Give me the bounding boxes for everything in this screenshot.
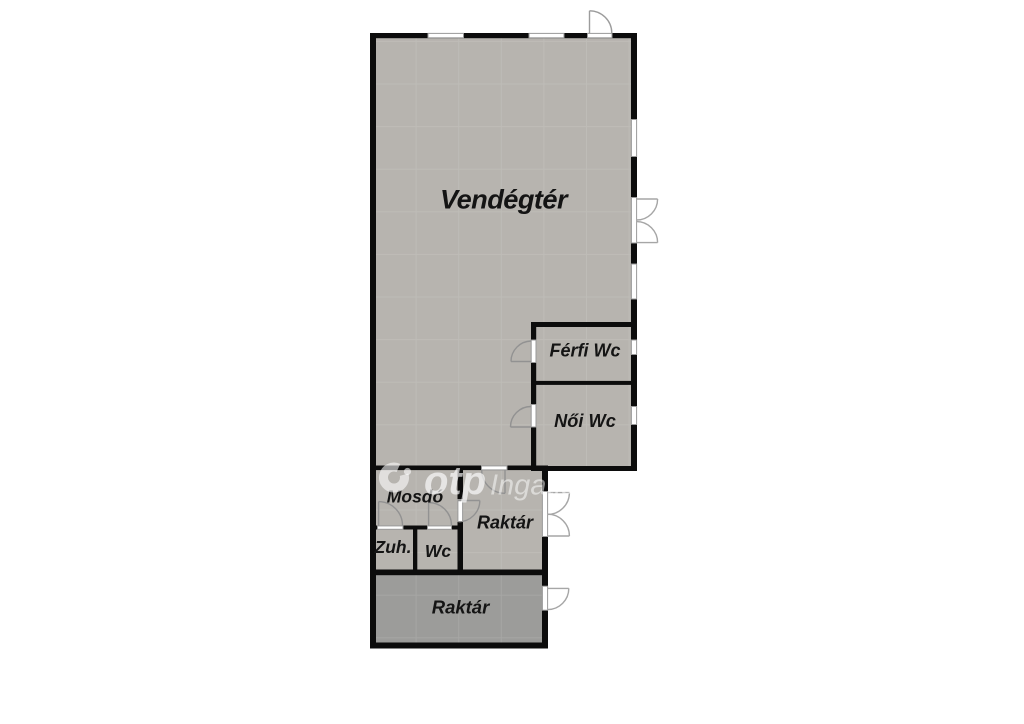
svg-text:Vendégtér: Vendégtér — [440, 184, 569, 215]
svg-text:otp: otp — [424, 459, 486, 503]
svg-text:Raktár: Raktár — [432, 597, 491, 618]
svg-text:Zuh.: Zuh. — [374, 537, 412, 557]
svg-text:Wc: Wc — [425, 541, 452, 561]
svg-text:Férfi Wc: Férfi Wc — [549, 341, 620, 361]
svg-text:Ingatlan: Ingatlan — [490, 470, 593, 502]
svg-text:Raktár: Raktár — [477, 513, 534, 533]
svg-text:Női Wc: Női Wc — [554, 411, 616, 431]
